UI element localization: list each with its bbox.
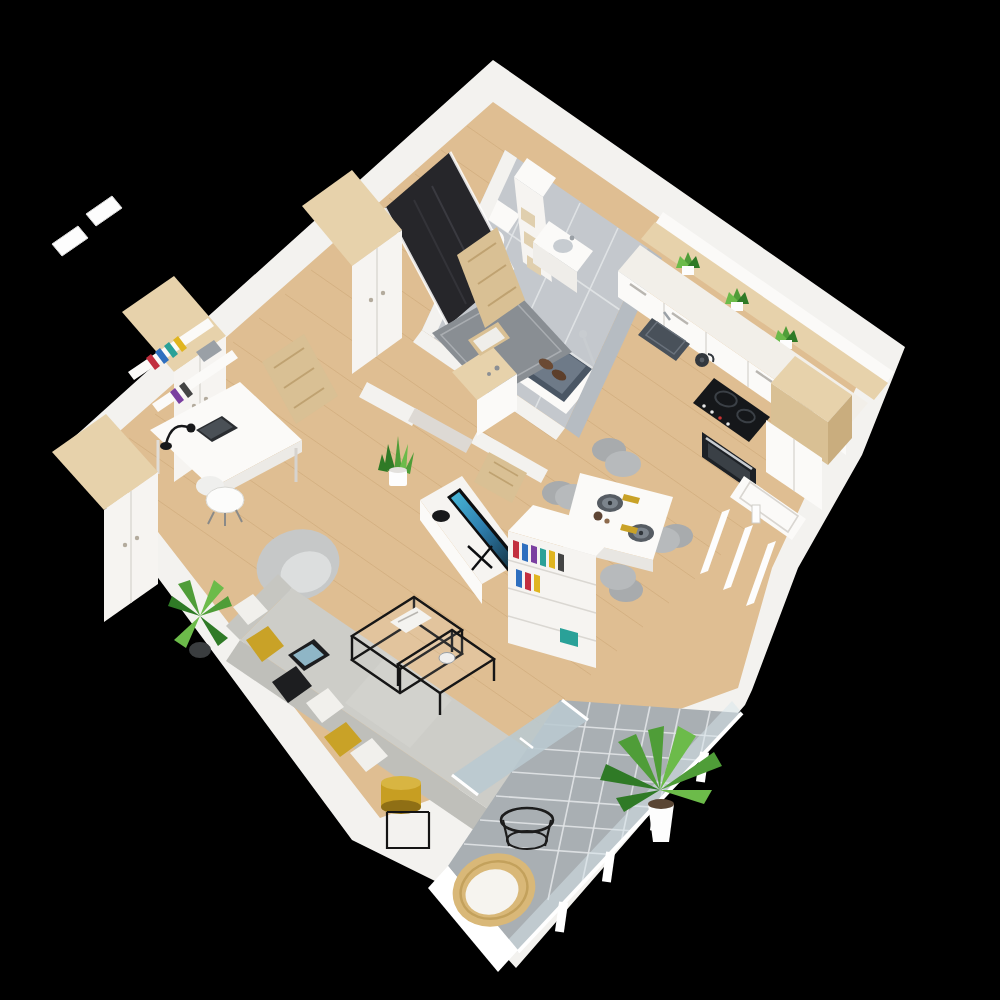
bowl <box>439 653 455 664</box>
floor-plan-render: 3D isometric cutaway floor plan render o… <box>0 0 1000 1000</box>
vase <box>752 505 760 523</box>
table-jar <box>594 512 603 521</box>
decor-bowl <box>432 510 450 522</box>
table-candle <box>604 518 609 523</box>
apartment-isometric-svg: 3D isometric cutaway floor plan render o… <box>0 0 1000 1000</box>
